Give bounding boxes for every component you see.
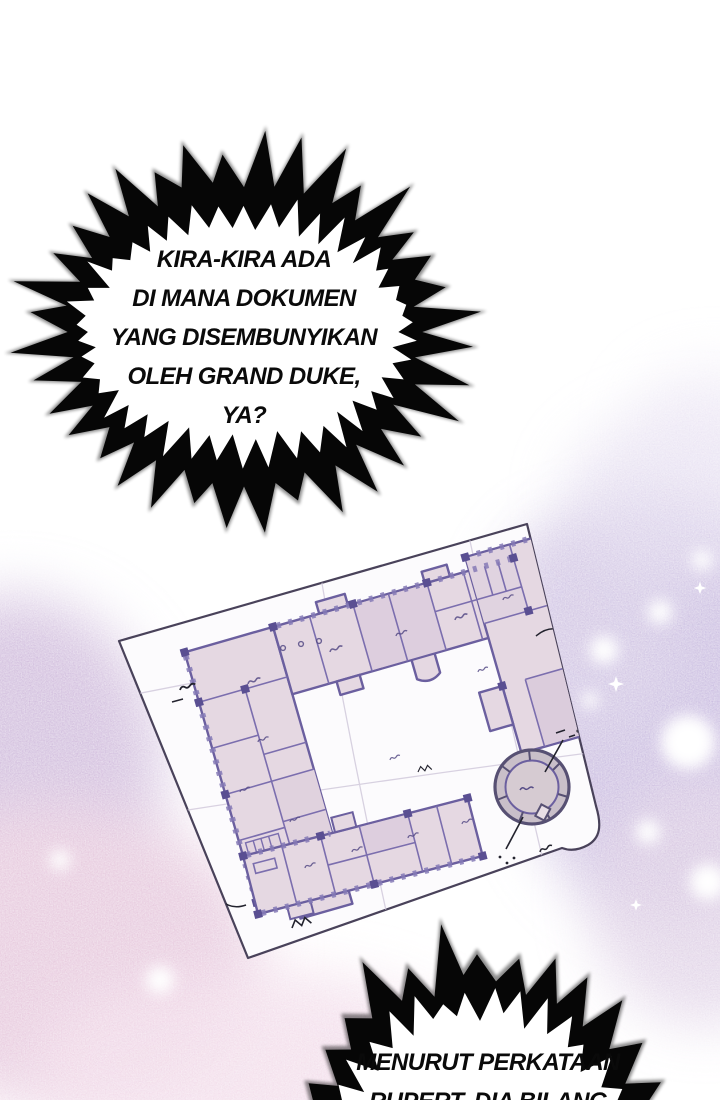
bubble-line: YANG DISEMBUNYIKAN [64,318,424,357]
comic-page: KIRA-KIRA ADA DI MANA DOKUMEN YANG DISEM… [0,0,720,1100]
bubble-line: YA? [64,396,424,435]
bubble-line: OLEH GRAND DUKE, [64,357,424,396]
speech-bubble-top-text: KIRA-KIRA ADA DI MANA DOKUMEN YANG DISEM… [64,240,424,435]
bubble-line: MENURUT PERKATAAN [308,1043,668,1082]
bubble-line: RUPERT, DIA BILANG [308,1082,668,1100]
bubble-line: DI MANA DOKUMEN [64,279,424,318]
speech-bubble-bottom-text: MENURUT PERKATAAN RUPERT, DIA BILANG [308,1043,668,1100]
speech-burst-bottom [0,0,720,1100]
bubble-line: KIRA-KIRA ADA [64,240,424,279]
